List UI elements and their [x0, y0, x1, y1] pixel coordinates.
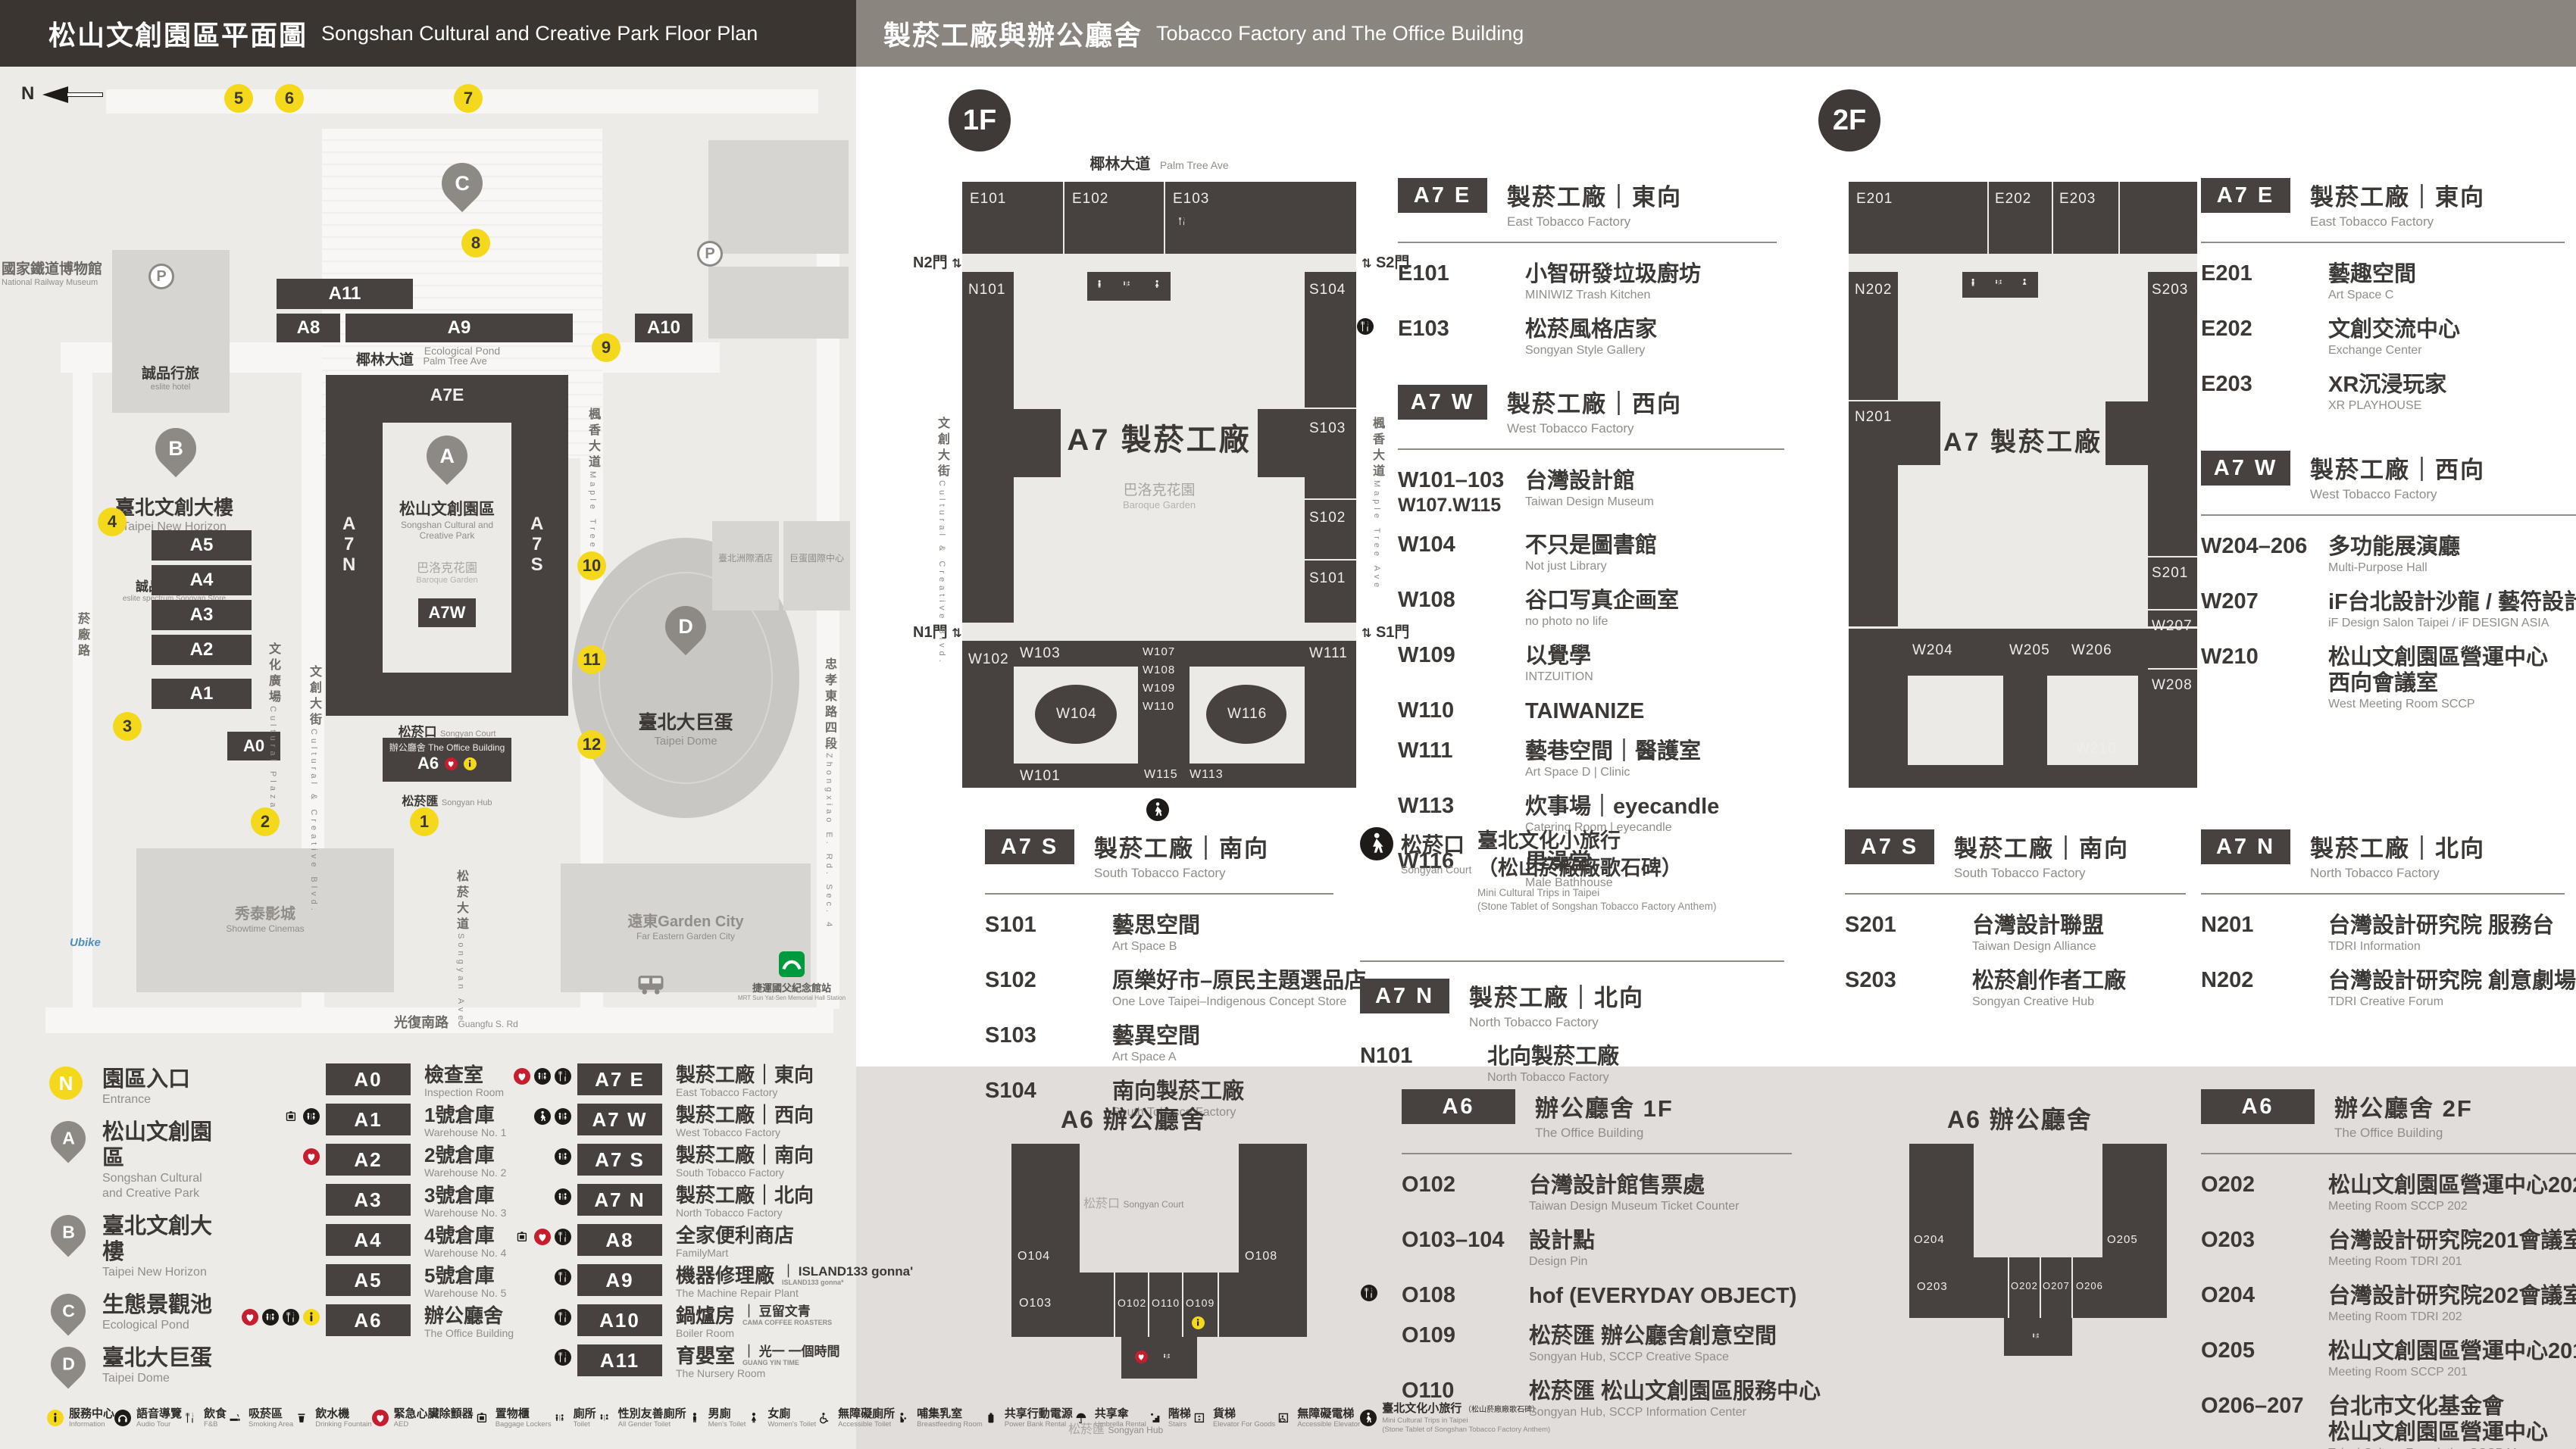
gate-2: 2: [261, 812, 270, 832]
section-a6-2f: A6 辦公廳舍 2FThe Office Building O202松山文創園區…: [2201, 1089, 2576, 1449]
guangfu-zh: 光復南路: [394, 1015, 449, 1030]
a7e-map-label: A7E: [326, 385, 568, 405]
room-name-en: iF Design Salon Taipei / iF DESIGN ASIA: [2328, 616, 2576, 630]
entrance-7: 7: [454, 84, 483, 113]
new-horizon-pin: B: [147, 420, 205, 477]
a7s-2f-badge: A7 S: [1845, 829, 1934, 864]
room-code: O110: [1402, 1379, 1529, 1419]
a6-hub-zh: 松菸匯: [1068, 1423, 1105, 1436]
map-a6-2f: A6 辦公廳舍 O204 O205 O203 O202 O207 O206: [1856, 1079, 2212, 1382]
section-2f-a7e: A7 E 製菸工廠｜東向East Tobacco Factory E201藝趣空…: [2201, 178, 2565, 427]
building-badge: A7 N: [577, 1184, 662, 1216]
facility-item: 服務中心Information: [47, 1407, 114, 1429]
cinema-block: 秀泰影城 Showtime Cinemas: [136, 848, 394, 992]
room-row: S203松菸創作者工廠Songyan Creative Hub: [1845, 968, 2186, 1009]
gate-3: 3: [123, 717, 132, 736]
sy-ave-zh: 松菸大道: [455, 870, 467, 933]
park-map: N 國家鐵道博物館 National Railway Museum C 生態景觀…: [0, 67, 856, 1051]
entrance-9: 9: [592, 333, 621, 362]
a7w-title-zh: 製菸工廠｜西向: [1507, 385, 1682, 419]
gate-6: 6: [285, 89, 294, 108]
court-line1: 臺北文化小旅行: [1477, 827, 1716, 854]
room-w113: W113: [1190, 768, 1224, 782]
room-name-en: Not just Library: [1525, 559, 1657, 573]
guangfu-rd-label: 光復南路 Guangfu S. Rd: [394, 1012, 518, 1032]
maple-1f-zh: 楓香大道: [1371, 417, 1383, 480]
a7w-2f-title-en: West Tobacco Factory: [2310, 487, 2485, 502]
dome-pin-letter: D: [678, 615, 693, 639]
legend-building-row: A7 W製菸工廠｜西向West Tobacco Factory: [476, 1104, 855, 1139]
building-badge: A0: [326, 1063, 411, 1095]
palm-1f-zh: 椰林大道: [1089, 156, 1150, 173]
room-name-en: Art Space C: [2328, 288, 2416, 302]
toilet-icon: [552, 1410, 568, 1426]
a7-center-text-1f: A7 製菸工廠: [1014, 415, 1305, 459]
facility-item: 置物櫃Baggage Lockers: [474, 1407, 552, 1429]
zhongxiao-zh: 忠孝東路四段: [823, 657, 836, 753]
room-name-en: no photo no life: [1525, 614, 1679, 629]
fountain-icon: [293, 1410, 310, 1426]
room-code: O108: [1402, 1283, 1529, 1309]
walk-icon: [1146, 798, 1169, 821]
park-pin-letter: A: [439, 445, 455, 468]
dome-en: Taipei Dome: [610, 735, 761, 748]
compass-tail: [67, 92, 103, 97]
room-name-zh: 台灣設計館: [1525, 468, 1654, 494]
room-name-en: TDRI Creative Forum: [2328, 995, 2565, 1009]
walk-icon: [1360, 827, 1393, 860]
building-badge: A4: [326, 1224, 411, 1256]
court-title-zh: 松菸口: [1401, 829, 1465, 859]
cinema-zh: 秀泰影城: [136, 901, 394, 923]
room-row: O102台灣設計館售票處Taiwan Design Museum Ticket …: [1402, 1173, 1792, 1213]
room-name-zh: 藝巷空間｜醫護室: [1525, 739, 1701, 764]
a7w-title-en: West Tobacco Factory: [1507, 421, 1682, 436]
entrance-2: 2: [251, 807, 280, 836]
room-code: S102: [985, 968, 1112, 1009]
warehouse-a1: A1: [152, 679, 252, 709]
room-code: N202: [2201, 968, 2328, 1009]
room-code: W110: [1398, 698, 1525, 724]
section-2f-a7s: A7 S 製菸工廠｜南向South Tobacco Factory S201台灣…: [1845, 829, 2186, 1023]
allgender-icon: [596, 1410, 613, 1426]
park-zh: 松山文創園區: [371, 497, 523, 520]
gate-1: 1: [420, 812, 429, 832]
room-name-en: Taiwan Design Alliance: [1972, 939, 2104, 954]
entrance-12: 12: [577, 730, 606, 759]
facility-item: 男廁Men's Toilet: [686, 1407, 746, 1429]
room-code: S203: [1845, 968, 1972, 1009]
entrance-5: 5: [224, 84, 253, 113]
section-2f-a7n: A7 N 製菸工廠｜北向North Tobacco Factory N201台灣…: [2201, 829, 2565, 1023]
floor-plan-poster: 松山文創園區平面圖 Songshan Cultural and Creative…: [0, 0, 2576, 1449]
mrt-icon: [779, 951, 805, 977]
room-row: E103松菸風格店家Songyan Style Gallery: [1398, 317, 1777, 358]
room-row: O206–207台北市文化基金會松山文創園區營運中心Taipei Culture…: [2201, 1394, 2576, 1449]
room-row: O109松菸匯 辦公廳舍創意空間Songyan Hub, SCCP Creati…: [1402, 1323, 1792, 1364]
map-pin-icon: D: [43, 1339, 92, 1388]
a6-1f-title-zh: 辦公廳舍 1F: [1535, 1089, 1674, 1123]
room-row: E202文創交流中心Exchange Center: [2201, 317, 2565, 358]
legend-building-row: A7 N製菸工廠｜北向North Tobacco Factory: [476, 1184, 855, 1219]
room-name-en: Songyan Style Gallery: [1525, 343, 1657, 358]
entrance-10: 10: [577, 551, 606, 580]
room-name-zh: 松山文創園區營運中心201會議室: [2328, 1338, 2576, 1364]
compass-arrow-icon: [42, 86, 68, 103]
room-code: W204–206: [2201, 534, 2328, 575]
room-name-zh: 松菸創作者工廠: [1972, 968, 2126, 994]
fnb-icon: [1361, 1285, 1377, 1301]
plaza-zh: 文化廣場: [267, 642, 280, 706]
a6-2f-badge: A6: [2201, 1089, 2315, 1124]
gate-10: 10: [583, 556, 601, 576]
a7e-title-zh: 製菸工廠｜東向: [1507, 178, 1682, 212]
room-o102-map: O102: [1118, 1297, 1146, 1309]
room-row: N201台灣設計研究院 服務台TDRI Information: [2201, 913, 2565, 954]
a5-label: A5: [190, 535, 214, 556]
room-w102: W102: [968, 651, 1009, 668]
maple-1f: 楓香大道Maple Tree Ave: [1368, 417, 1386, 591]
a6-court-en: Songyan Court: [1123, 1199, 1183, 1210]
room-code: W111: [1398, 739, 1525, 779]
map-1f: 椰林大道 Palm Tree Ave E101 E102 E103 N101 W…: [913, 129, 1398, 841]
a7e-2f-title-zh: 製菸工廠｜東向: [2310, 178, 2485, 212]
room-row: O203台灣設計研究院201會議室Meeting Room TDRI 201: [2201, 1228, 2576, 1269]
palm-ave-zh: 椰林大道: [356, 352, 414, 368]
legend-place-row: B臺北文創大樓Taipei New Horizon: [49, 1213, 224, 1280]
room-w206: W206: [2071, 642, 2112, 659]
a0-label: A0: [243, 736, 264, 756]
building-badge: A8: [577, 1224, 662, 1256]
room-name-en: Art Space A: [1112, 1050, 1200, 1064]
room-row: S103藝異空間Art Space A: [985, 1023, 1333, 1064]
room-code: E202: [2201, 317, 2328, 358]
room-name-en: Songyan Creative Hub: [1972, 995, 2126, 1009]
entrance-marker-icon: N: [49, 1066, 83, 1100]
room-name-zh: 文創交流中心: [2328, 317, 2460, 342]
fnb-icon: [1357, 318, 1374, 335]
legend-place-row: N園區入口Entrance: [49, 1066, 224, 1107]
building-badge: A6: [326, 1304, 411, 1336]
info-icon: [1192, 1316, 1205, 1329]
parking-icon-1: P: [148, 264, 174, 289]
room-name-en: TDRI Information: [2328, 939, 2554, 954]
a7-center-1f: A7 製菸工廠 巴洛克花園 Baroque Garden: [1014, 415, 1305, 511]
a7e-text: A7E: [430, 385, 464, 404]
a6-2f-title-en: The Office Building: [2334, 1126, 2473, 1141]
room-w109: W109: [1143, 682, 1175, 695]
room-w110: W110: [1143, 700, 1174, 713]
room-code: W104: [1398, 532, 1525, 573]
room-w104-oval: W104: [1035, 685, 1117, 744]
map-pin-icon: A: [43, 1113, 92, 1163]
eslite-hotel-zh: 誠品行旅: [114, 362, 227, 383]
map-a6-1f: A6 辦公廳舍 O104 O108 松菸口 Songyan Court O103…: [970, 1079, 1402, 1443]
facility-item: 吸菸區Smoking Area: [227, 1407, 293, 1429]
room-row: W204–206多功能展演廳Multi-Purpose Hall: [2201, 534, 2576, 575]
room-name-zh: 藝異空間: [1112, 1023, 1200, 1049]
warehouse-a8: A8: [277, 314, 340, 342]
a7n-title-zh: 製菸工廠｜北向: [1469, 979, 1644, 1013]
building-badge: A9: [577, 1264, 662, 1296]
building-badge: A7 E: [577, 1063, 662, 1095]
facility-item: 廁所Toilet: [552, 1407, 596, 1429]
map-pin-icon: C: [43, 1286, 92, 1335]
room-name-en: West Meeting Room SCCP: [2328, 697, 2548, 711]
room-name-zh: 多功能展演廳: [2328, 534, 2460, 560]
left-header: 松山文創園區平面圖 Songshan Cultural and Creative…: [0, 0, 856, 67]
room-row: N101北向製菸工廠North Tobacco Factory: [1360, 1044, 1784, 1085]
gate-9: 9: [602, 338, 611, 358]
garden-zh: 遠東Garden City: [561, 909, 811, 931]
a6-2f-slab: O203 O202 O207 O206: [1909, 1257, 2167, 1318]
a7s-map-label: A7S: [530, 514, 543, 575]
a6-hub-en: Songyan Hub: [1108, 1425, 1163, 1435]
songyan-hub-label: 松菸匯 Songyan Hub: [371, 791, 523, 809]
fnb-icon: [283, 1309, 299, 1326]
baroque-1f-zh: 巴洛克花園: [1014, 479, 1305, 499]
building-badge: A11: [577, 1344, 662, 1376]
a7n-2f-title-zh: 製菸工廠｜北向: [2310, 829, 2485, 863]
toilet-icon: [555, 1188, 571, 1205]
a7w-2f-title-zh: 製菸工廠｜西向: [2310, 451, 2485, 485]
legend-place-row: D臺北大巨蛋Taipei Dome: [49, 1345, 224, 1386]
zhongxiao-rd-label: 忠孝東路四段Zhongxiao E. Rd. Sec. 4: [820, 657, 838, 930]
room-e103: E103: [1173, 191, 1209, 208]
room-row: E101小智研發垃圾廚坊MINIWIZ Trash Kitchen: [1398, 261, 1777, 302]
a7s-2f-title-en: South Tobacco Factory: [1954, 866, 2129, 881]
park-en1: Songshan Cultural and: [371, 520, 523, 530]
room-code: O202: [2201, 1173, 2328, 1213]
eslite-hotel-label: 誠品行旅 eslite hotel: [114, 362, 227, 392]
room-name-zh: 松菸匯 辦公廳舍創意空間: [1529, 1323, 1777, 1349]
entrance-1: 1: [410, 807, 439, 836]
a7e-badge: A7 E: [1398, 178, 1487, 213]
a7-center-text-2f: A7 製菸工廠: [1898, 421, 2148, 458]
a4-label: A4: [190, 570, 214, 591]
map-2f: E201 E202 E203 N202 N201 S203 S201 W207 …: [1788, 129, 2212, 841]
court-line2: （松山菸廠廠歌石碑）: [1477, 854, 1716, 882]
room-code: N101: [1360, 1044, 1487, 1085]
neighbor-block-2: [708, 267, 849, 339]
court-en1: Mini Cultural Trips in Taipei: [1477, 886, 1716, 900]
room-o202-map: O202: [2011, 1280, 2038, 1291]
facility-item: 飲水機Drinking Fountain: [293, 1407, 371, 1429]
legend-building-row: A7 S製菸工廠｜南向South Tobacco Factory: [476, 1144, 855, 1179]
a7w-badge: A7 W: [1398, 385, 1487, 420]
mrt-label: 捷運國父紀念館站 MRT Sun Yat-Sen Memorial Hall S…: [720, 980, 864, 1001]
room-n101: N101: [968, 282, 1005, 298]
room-name-zh: 台灣設計聯盟: [1972, 913, 2104, 938]
room-name-en: North Tobacco Factory: [1487, 1070, 1619, 1085]
info-icon: [464, 757, 477, 770]
court-title-en: Songyan Court: [1401, 863, 1477, 876]
room-o103: O103: [1019, 1297, 1052, 1310]
building-badge: A3: [326, 1184, 411, 1216]
maple-zh: 楓香大道: [586, 408, 599, 471]
a6-2f-right-wing: O205: [2102, 1144, 2167, 1257]
a6-2f-map-title: A6 辦公廳舍: [1947, 1101, 2093, 1135]
a6-2f-title-zh: 辦公廳舍 2F: [2334, 1089, 2473, 1123]
compass: N: [21, 83, 34, 105]
room-row: W110TAIWANIZE: [1398, 698, 1784, 724]
room-code: S101: [985, 913, 1112, 954]
room-row: O204台灣設計研究院202會議室Meeting Room TDRI 202: [2201, 1283, 2576, 1324]
a6-1f-title-en: The Office Building: [1535, 1126, 1674, 1141]
gate-5: 5: [234, 89, 243, 108]
room-w204: W204: [1912, 642, 1953, 659]
ccblvd-1f: 文創大街Cultural & Creative Blvd.: [933, 417, 951, 666]
ccblvd-1f-zh: 文創大街: [936, 417, 949, 480]
room-row: O110松菸匯 松山文創園區服務中心Songyan Hub, SCCP Info…: [1402, 1379, 1792, 1419]
entrance-6: 6: [275, 84, 304, 113]
hub-zh: 松菸匯: [402, 795, 438, 808]
room-row: S201台灣設計聯盟Taiwan Design Alliance: [1845, 913, 2186, 954]
baroque-1f-en: Baroque Garden: [1014, 499, 1305, 511]
room-w111: W111: [1309, 645, 1348, 662]
room-code: O103–104: [1402, 1228, 1529, 1269]
room-name-en: Meeting Room SCCP 202: [2328, 1199, 2576, 1213]
a9-label: A9: [448, 317, 471, 339]
audio-icon: [114, 1410, 131, 1426]
a7e-2f-title-en: East Tobacco Factory: [2310, 214, 2485, 230]
ccblvd-en: Cultural & Creative Blvd.: [309, 729, 318, 914]
toilet-icon: [1993, 276, 2005, 289]
room-name-zh: 原樂好市–原民主題選品店: [1112, 968, 1333, 994]
room-code: W207: [2201, 589, 2328, 630]
room-name-zh: 台灣設計館售票處: [1529, 1173, 1739, 1198]
a11-label: A11: [329, 283, 361, 304]
a6-1f-left-wing: O104: [1011, 1144, 1080, 1273]
baroque-zh: 巴洛克花園: [371, 557, 523, 576]
a7e-title-en: East Tobacco Factory: [1507, 214, 1682, 230]
fnb-icon: [1176, 215, 1189, 228]
toilet-icon: [534, 1068, 551, 1085]
warehouse-a3: A3: [152, 600, 252, 630]
woman-icon: [746, 1410, 762, 1426]
toilet-notch-2f: [1962, 272, 2038, 298]
room-w104: W104: [1056, 706, 1097, 723]
guangfu-en: Guangfu S. Rd: [458, 1019, 517, 1029]
facility-item: 性別友善廁所All Gender Toilet: [596, 1407, 686, 1429]
facility-item: 無障礙廁所Accessible Toilet: [816, 1407, 895, 1429]
warehouse-a2: A2: [152, 635, 252, 665]
a10-label: A10: [647, 317, 680, 339]
yanchang-zh: 菸廠路: [76, 612, 89, 660]
toilet-icon: [2030, 1330, 2043, 1343]
room-o108-map: O108: [1245, 1250, 1277, 1263]
room-name-zh: 台灣設計研究院202會議室: [2328, 1283, 2576, 1309]
dome-zh: 臺北大巨蛋: [610, 707, 761, 735]
room-code: O109: [1402, 1323, 1529, 1364]
aed-icon: [1135, 1351, 1148, 1363]
gate-8: 8: [471, 233, 480, 253]
fnb-icon: [555, 1349, 571, 1366]
room-w103: W103: [1020, 645, 1061, 662]
room-name-zh: hof (EVERYDAY OBJECT): [1529, 1283, 1792, 1309]
warehouse-a5: A5: [152, 530, 252, 561]
entrance-4: 4: [98, 507, 127, 536]
garden-en: Far Eastern Garden City: [561, 931, 811, 942]
room-code: O102: [1402, 1173, 1529, 1213]
room-code: S201: [1845, 913, 1972, 954]
mrt-en: MRT Sun Yat-Sen Memorial Hall Station: [720, 995, 864, 1001]
a6-1f-right-wing: O108: [1239, 1144, 1307, 1273]
a6-1f-badge: A6: [1402, 1089, 1515, 1124]
legend-buildings-col3: A7 E製菸工廠｜東向East Tobacco FactoryA7 W製菸工廠｜…: [476, 1063, 855, 1385]
aed-icon: [534, 1229, 551, 1245]
man-icon: [686, 1410, 703, 1426]
room-name-zh: 藝思空間: [1112, 913, 1200, 938]
office-en: The Office Building: [428, 742, 505, 753]
ccblvd-zh: 文創大街: [308, 665, 320, 729]
a7s-title-en: South Tobacco Factory: [1094, 866, 1269, 881]
facility-item: 女廁Women's Toilet: [746, 1407, 816, 1429]
fnb-icon: [555, 1229, 571, 1245]
parking-icon-2: P: [697, 241, 723, 267]
a7w-2f-badge: A7 W: [2201, 451, 2290, 486]
room-o110-map: O110: [1152, 1297, 1180, 1309]
left-title-en: Songshan Cultural and Creative Park Floo…: [321, 22, 758, 45]
office-a6-label: A6: [417, 754, 439, 773]
right-title-en: Tobacco Factory and The Office Building: [1156, 22, 1524, 45]
fnb-icon: [555, 1068, 571, 1085]
map-pin-icon: B: [43, 1207, 92, 1257]
section-1f-a7n: A7 N 製菸工廠｜北向North Tobacco Factory N101北向…: [1360, 960, 1784, 1099]
room-w115: W115: [1144, 768, 1178, 782]
room-e202: E202: [1995, 191, 2031, 208]
baroque-en: Baroque Garden: [371, 576, 523, 585]
building-badge: A7 S: [577, 1144, 662, 1176]
palm-ave-en: Palm Tree Ave: [423, 355, 486, 367]
room-name-zh: 台灣設計研究院 創意劇場: [2328, 968, 2565, 994]
gate-n2: N2門 ⇅: [913, 250, 957, 272]
park-label: 松山文創園區 Songshan Cultural and Creative Pa…: [371, 497, 523, 541]
room-code: S103: [985, 1023, 1112, 1064]
room-name-en: Art Space B: [1112, 939, 1200, 954]
a6-1f-map-title: A6 辦公廳舍: [1061, 1101, 1206, 1135]
section-1f-a7e: A7 E 製菸工廠｜東向East Tobacco Factory E101小智研…: [1398, 178, 1777, 372]
a6-court-label: 松菸口 Songyan Court: [1083, 1193, 1235, 1211]
room-row: W109以覺學INTZUITION: [1398, 643, 1784, 684]
building-badge: A2: [326, 1144, 411, 1176]
a6-court-zh: 松菸口: [1083, 1198, 1120, 1210]
hub-en: Songyan Hub: [442, 798, 492, 807]
yanchang-rd-label: 菸廠路: [73, 612, 91, 660]
room-o205: O205: [2107, 1233, 2138, 1246]
room-name-en: Exchange Center: [2328, 343, 2460, 358]
baroque-label: 巴洛克花園 Baroque Garden: [371, 557, 523, 585]
room-w116: W116: [1227, 706, 1267, 723]
walk-icon: [534, 1108, 551, 1125]
legend-building-row: A8全家便利商店FamilyMart: [476, 1224, 855, 1260]
office-building-a6: 辦公廳舍 The Office Building A6: [383, 738, 511, 782]
a2-label: A2: [190, 639, 214, 660]
toilet-icon: [1121, 278, 1133, 291]
room-name-zh: 不只是圖書館: [1525, 532, 1657, 558]
aed-icon: [242, 1309, 258, 1326]
room-code: E103: [1398, 317, 1525, 358]
toilet-notch-1f: [1087, 272, 1171, 301]
room-s103: S103: [1309, 420, 1346, 437]
gate-7: 7: [464, 89, 473, 108]
a7s-2f-title-zh: 製菸工廠｜南向: [1954, 829, 2129, 863]
room-w101: W101: [1020, 768, 1061, 785]
fnb-icon: [555, 1269, 571, 1285]
room-name-en: MINIWIZ Trash Kitchen: [1525, 288, 1701, 302]
warehouse-a11: A11: [277, 279, 413, 309]
toilet-icon: [1161, 1351, 1174, 1363]
